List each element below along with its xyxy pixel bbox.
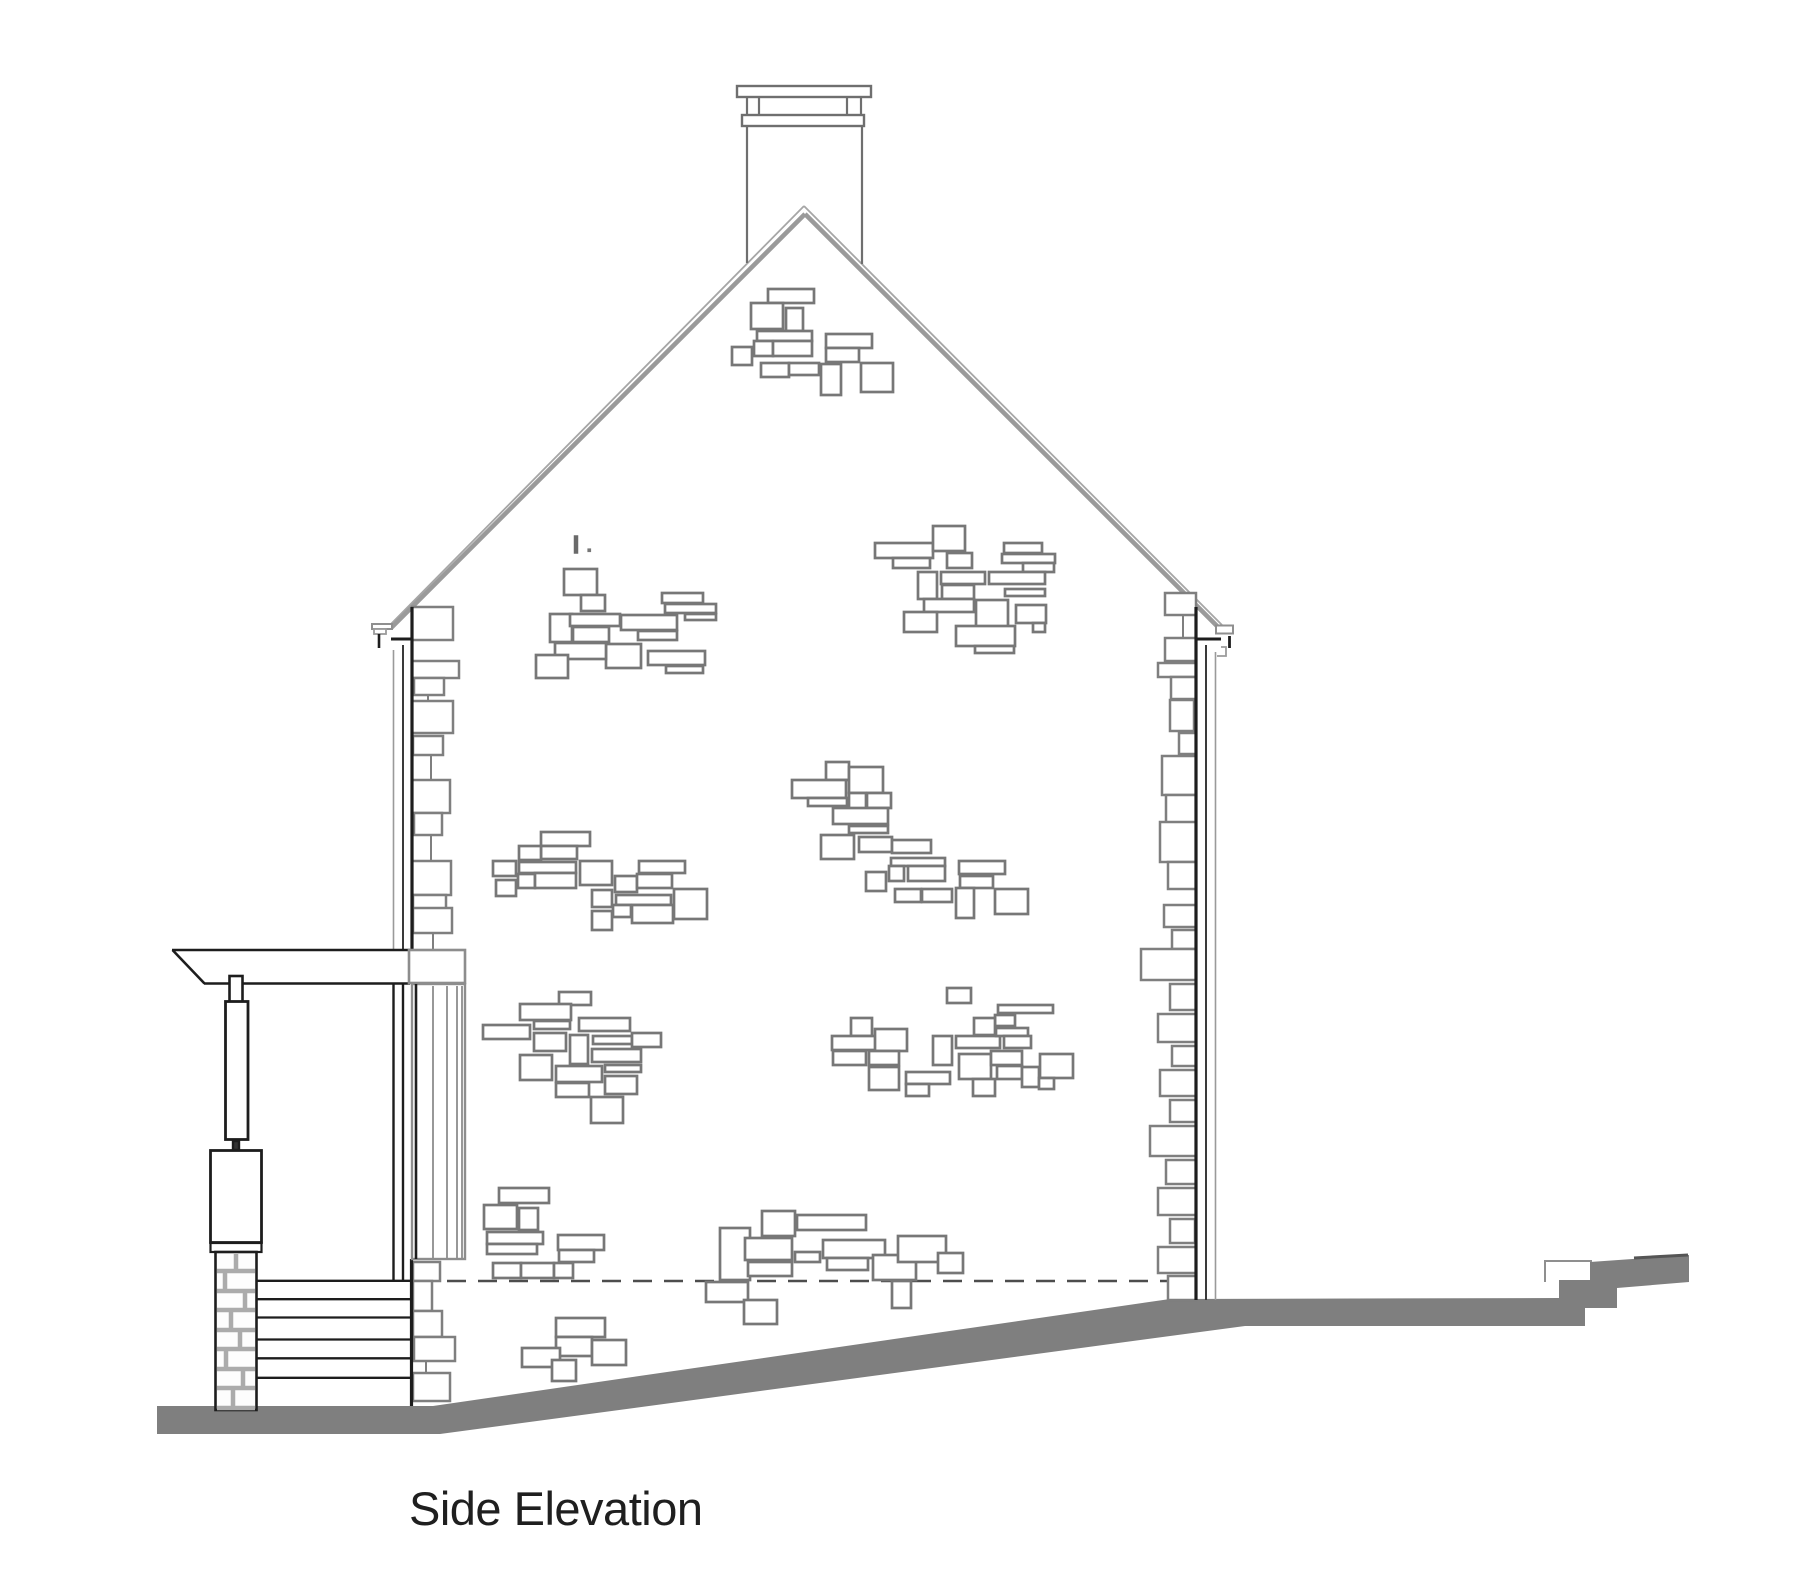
svg-text:Side Elevation: Side Elevation (409, 1482, 702, 1535)
